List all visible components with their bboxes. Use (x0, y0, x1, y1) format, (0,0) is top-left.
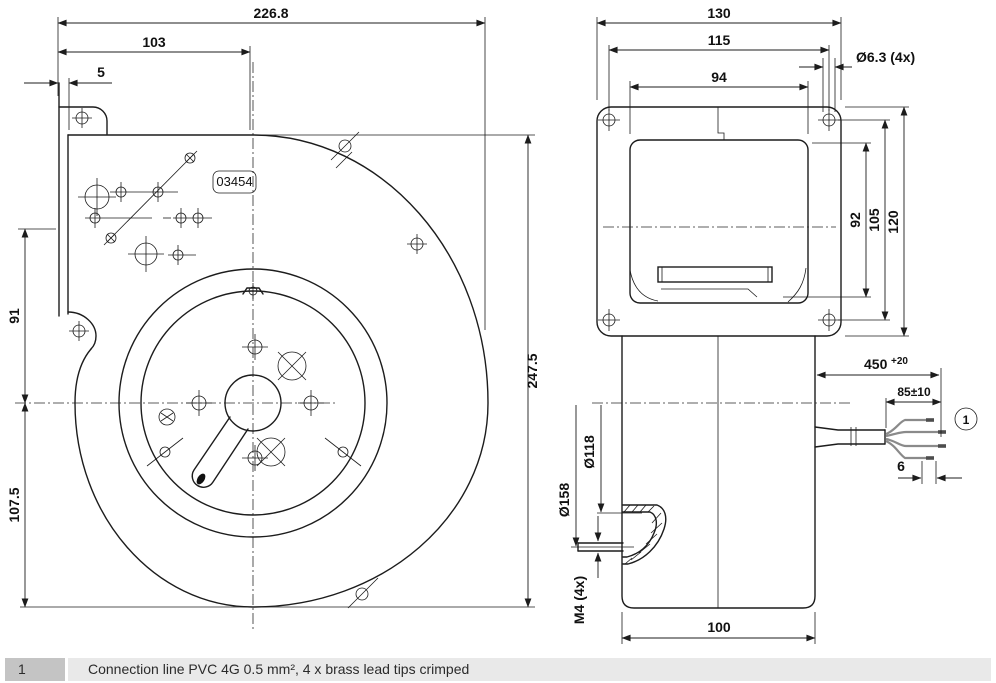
part-number-label: 03454 (216, 174, 252, 189)
note-index: 1 (18, 661, 26, 677)
note-index-cell (5, 658, 65, 681)
outlet-flange-hole-top (72, 108, 92, 128)
callout-number: 1 (963, 413, 970, 427)
dim-flange-height: 120 (885, 210, 901, 234)
dim-upper-height: 91 (6, 308, 22, 324)
dim-motor-depth: 100 (707, 619, 731, 635)
technical-drawing-canvas: 03454 226.8 103 5 91 107.5 247.5 (0, 0, 996, 683)
dim-housing-height: 92 (847, 212, 863, 228)
front-view: 03454 226.8 103 5 91 107.5 247.5 (6, 5, 540, 630)
dim-flange-width: 130 (707, 5, 731, 21)
dim-strip-length: 85±10 (897, 385, 931, 399)
connection-cable (815, 420, 946, 458)
side-view-dimensions: 130 115 94 Ø6.3 (4x) 92 105 (556, 5, 962, 644)
motor-hole-pattern (78, 151, 212, 272)
cable-wires (886, 420, 946, 458)
dim-hole-spacing-v: 105 (866, 208, 882, 232)
small-hole-left (159, 409, 175, 425)
dim-inlet-inner-diameter: Ø118 (581, 435, 597, 469)
stem-tip (195, 472, 207, 486)
note-text: Connection line PVC 4G 0.5 mm², 4 x bras… (88, 661, 469, 677)
notes-bar: 1 Connection line PVC 4G 0.5 mm², 4 x br… (5, 658, 991, 681)
drawing-sheet: 03454 226.8 103 5 91 107.5 247.5 (0, 0, 996, 683)
dim-lower-height: 107.5 (6, 487, 22, 522)
dim-housing-width: 94 (711, 69, 727, 85)
callout-bubble: 1 (955, 408, 977, 430)
dim-outlet-width: 103 (142, 34, 166, 50)
dim-overall-height: 247.5 (524, 353, 540, 388)
dim-inlet-outer-diameter: Ø158 (556, 483, 572, 517)
dim-hole-diameter: Ø6.3 (4x) (856, 49, 915, 65)
backplate-notch-marks (147, 438, 361, 466)
scroll-housing-outline (20, 83, 535, 607)
part-number-tag: 03454 (213, 171, 256, 193)
terminal-cover (658, 267, 772, 282)
dim-cable-length: 450 (864, 356, 888, 372)
spot-weld-marks (331, 132, 427, 608)
dim-overall-width: 226.8 (253, 5, 288, 21)
side-view: 1 130 115 94 Ø6.3 (4x) 92 (556, 5, 977, 644)
dim-stud-thread: M4 (4x) (571, 576, 587, 624)
motor-body (592, 336, 852, 608)
mounting-flange (597, 107, 841, 336)
dim-flange-offset: 5 (97, 64, 105, 80)
dim-hole-spacing-h: 115 (708, 32, 731, 48)
rivet-holes (257, 352, 306, 466)
dim-tip-length: 6 (897, 458, 905, 474)
front-view-dimensions: 226.8 103 5 91 107.5 247.5 (6, 5, 540, 607)
outlet-flange-hole-bottom (69, 321, 89, 341)
dim-cable-length-tolerance: +20 (891, 356, 908, 367)
hub-and-stem (192, 375, 281, 487)
